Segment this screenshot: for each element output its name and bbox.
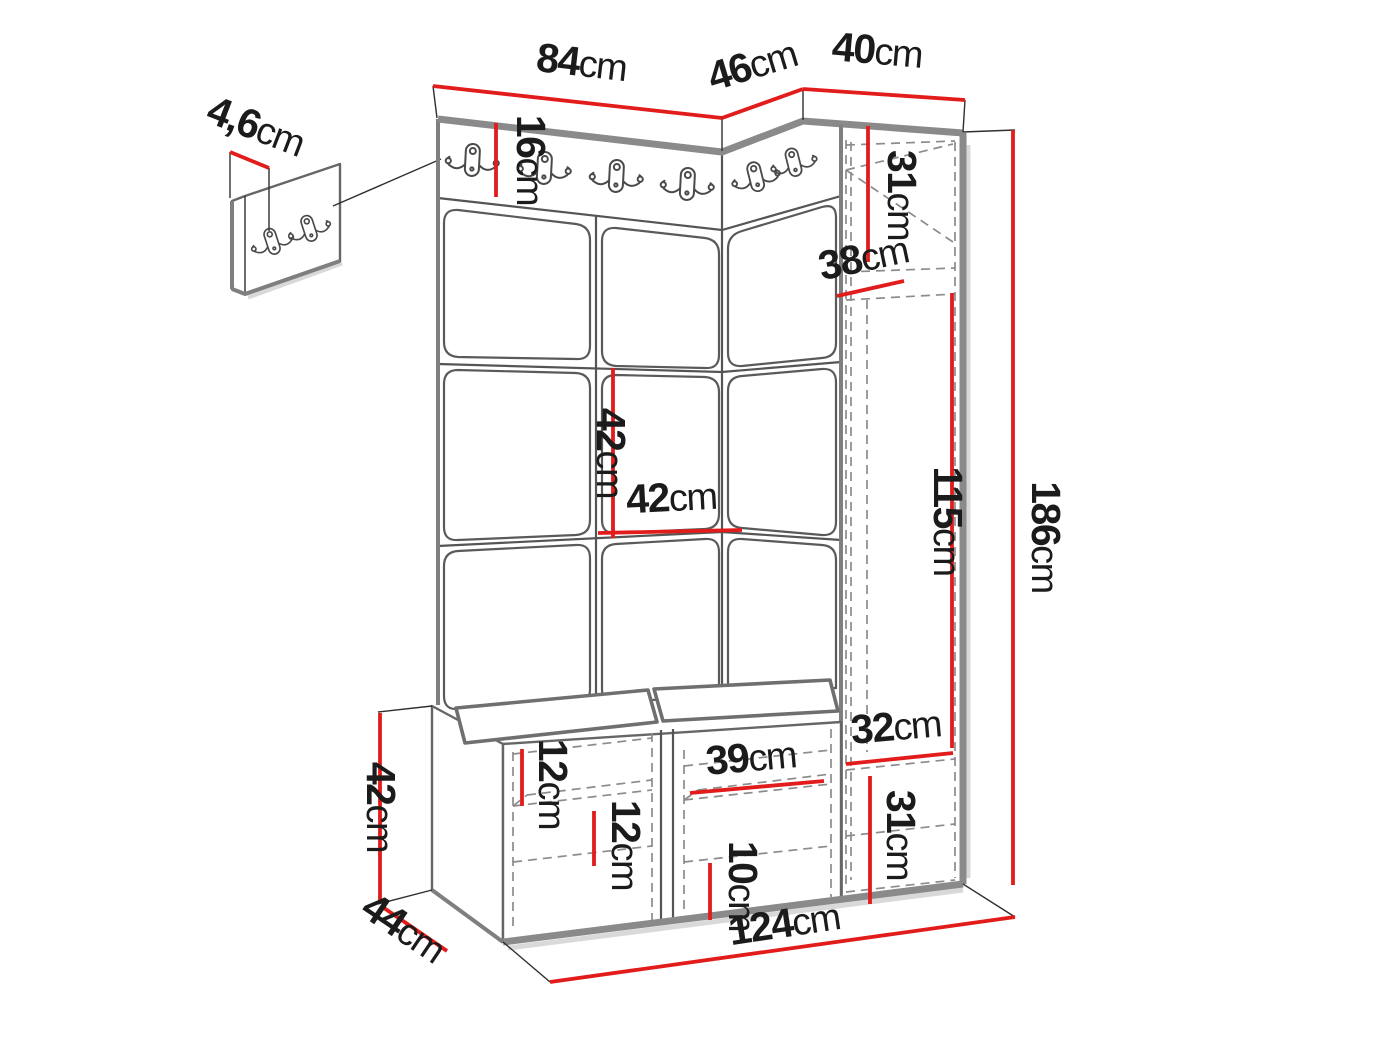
dim-label-4-6cm: 4,6cm	[201, 87, 311, 166]
dim-line-40	[803, 89, 965, 100]
hook-panel-face	[232, 164, 340, 294]
dimension-diagram: 84cm 46cm 40cm 4,6cm 16cm 31cm 38cm 42cm…	[0, 0, 1392, 1044]
dim-line-4-6	[230, 152, 269, 168]
bench-seat-cushion	[654, 680, 838, 721]
dim-label-31cm-bottom: 31cm	[878, 790, 924, 880]
dim-label-42cm-bench: 42cm	[358, 762, 404, 852]
detail-callout-line	[333, 159, 441, 206]
dim-label-39cm: 39cm	[704, 730, 798, 784]
hook-panel-detail	[232, 159, 441, 297]
dim-label-12cm-b: 12cm	[603, 800, 649, 890]
dim-label-40cm: 40cm	[830, 23, 924, 77]
dim-label-84cm: 84cm	[534, 34, 629, 90]
furniture-diagram-canvas: 84cm 46cm 40cm 4,6cm 16cm 31cm 38cm 42cm…	[0, 0, 1392, 1044]
dim-label-12cm-a: 12cm	[530, 739, 576, 829]
dim-label-16cm: 16cm	[508, 115, 554, 205]
dim-label-115cm: 115cm	[925, 466, 971, 575]
dim-label-186cm: 186cm	[1023, 481, 1069, 593]
dim-label-46cm: 46cm	[702, 29, 802, 99]
dim-line-84	[433, 86, 722, 118]
dim-label-42cm-tile-width: 42cm	[625, 472, 718, 523]
dim-label-32cm: 32cm	[849, 699, 943, 753]
dim-label-31cm-top: 31cm	[879, 150, 925, 240]
